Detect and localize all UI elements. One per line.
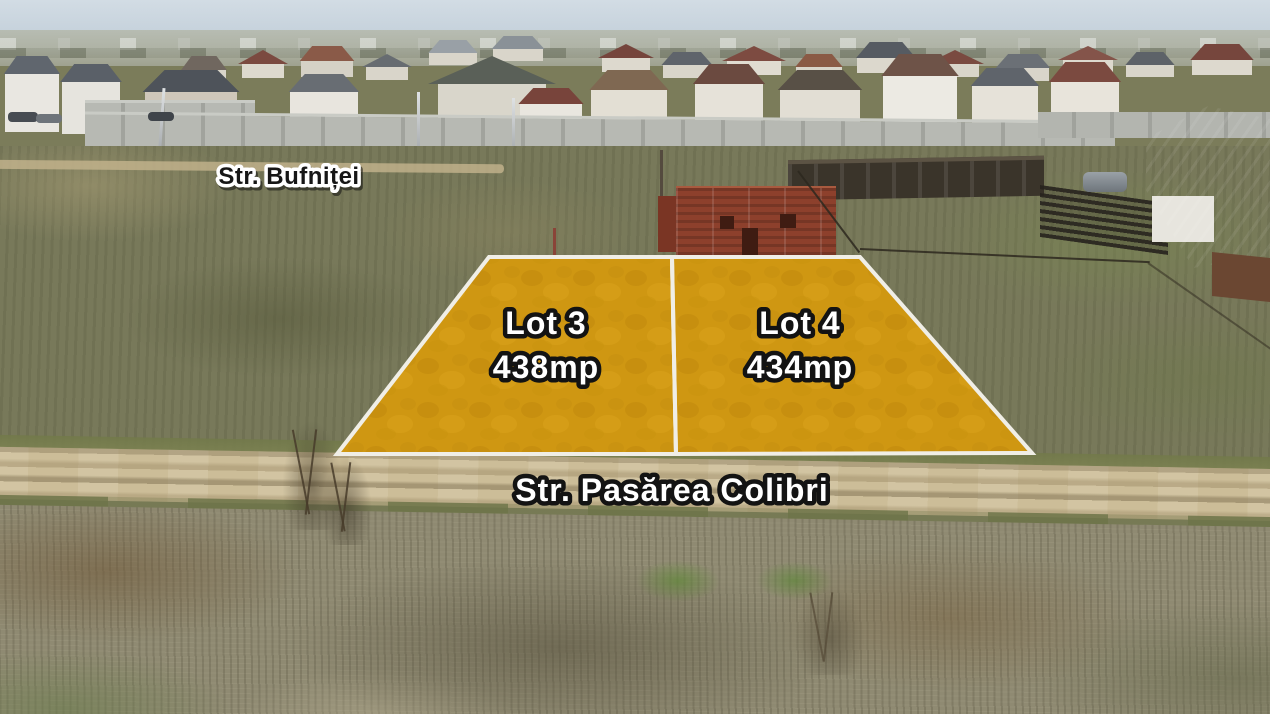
lot3-name-label: Lot 3	[505, 305, 586, 341]
lot4-name-label: Lot 4	[759, 305, 840, 341]
lot-overlay: Str. Bufniței Lot 3 438mp Lot 4 434mp St…	[0, 0, 1270, 714]
lot3-area-label: 438mp	[493, 349, 599, 385]
aerial-photo-scene: Str. Bufniței Lot 3 438mp Lot 4 434mp St…	[0, 0, 1270, 714]
street-label-top: Str. Bufniței	[218, 163, 359, 190]
street-label-bottom: Str. Pasărea Colibri	[515, 472, 828, 508]
lot4-area-label: 434mp	[747, 349, 853, 385]
